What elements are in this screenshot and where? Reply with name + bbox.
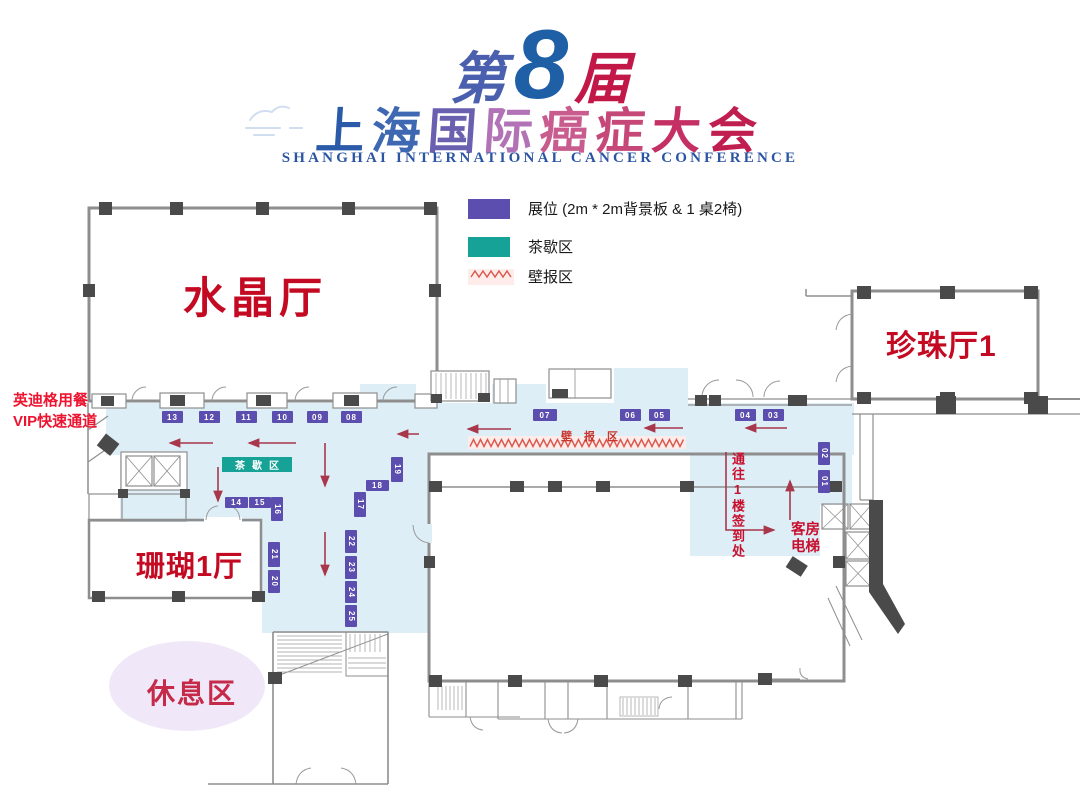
booth-01: 01: [818, 470, 830, 493]
booth-09: 09: [307, 411, 328, 423]
booth-21: 21: [268, 542, 280, 567]
booth-22: 22: [345, 530, 357, 553]
booth-layer: 1312111009080706050403141516171819212022…: [0, 0, 1080, 794]
booth-19: 19: [391, 457, 403, 482]
booth-14: 14: [225, 497, 248, 508]
booth-05: 05: [649, 409, 670, 421]
booth-11: 11: [236, 411, 257, 423]
booth-23: 23: [345, 556, 357, 579]
booth-16: 16: [271, 497, 283, 521]
booth-06: 06: [620, 409, 641, 421]
booth-07: 07: [533, 409, 557, 421]
booth-17: 17: [354, 492, 366, 517]
booth-10: 10: [272, 411, 293, 423]
booth-15: 15: [249, 497, 271, 508]
booth-20: 20: [268, 570, 280, 593]
booth-24: 24: [345, 581, 357, 603]
booth-13: 13: [162, 411, 183, 423]
booth-03: 03: [763, 409, 784, 421]
booth-18: 18: [366, 480, 389, 491]
booth-25: 25: [345, 605, 357, 627]
poster-area-label: 壁报区: [561, 428, 630, 444]
booth-08: 08: [341, 411, 362, 423]
floorplan-poster: 第8届 上海国际癌症大会 SHANGHAI INTERNATIONAL CANC…: [0, 0, 1080, 794]
booth-02: 02: [818, 442, 830, 465]
booth-12: 12: [199, 411, 220, 423]
booth-04: 04: [735, 409, 756, 421]
